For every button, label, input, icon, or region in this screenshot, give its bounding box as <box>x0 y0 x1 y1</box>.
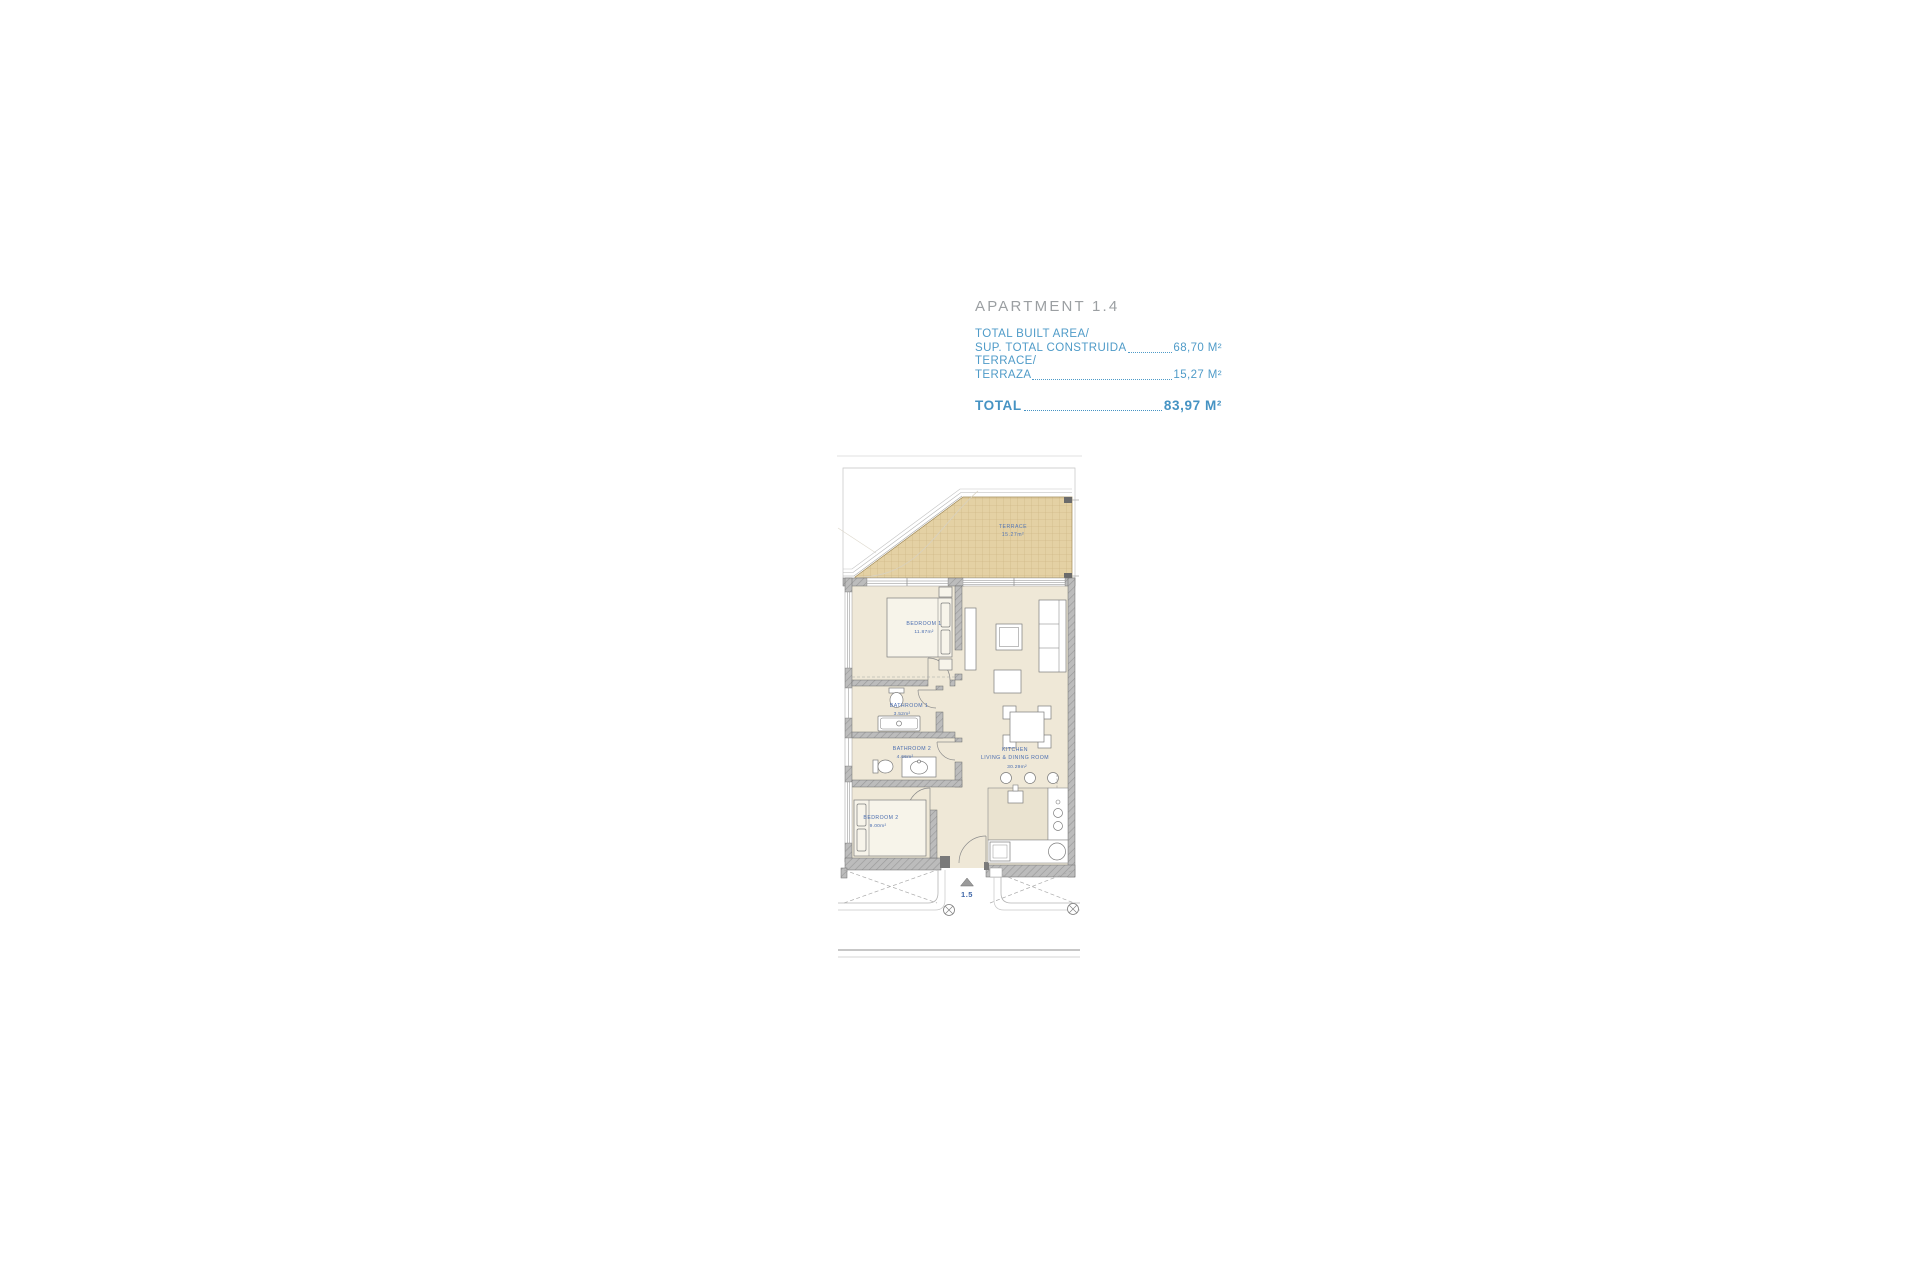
bathroom1-label: BATHROOM 1 <box>890 703 928 709</box>
built-area-value: 68,70 M² <box>1173 342 1222 356</box>
counter <box>1048 788 1068 840</box>
coffee-table-icon <box>994 670 1021 693</box>
living-dining-label: LIVING & DINING ROOM <box>981 755 1049 761</box>
bathroom2-area: 4.66m² <box>897 754 914 760</box>
armchair-cushion <box>1000 628 1019 647</box>
bedroom1-label: BEDROOM 1 <box>906 621 941 627</box>
area-summary: APARTMENT 1.4 TOTAL BUILT AREA/ SUP. TOT… <box>975 298 1225 413</box>
total-label: TOTAL <box>975 399 1022 413</box>
floor-plan: TERRACE 15.27m² <box>836 450 1084 970</box>
stool-icon <box>1001 773 1012 784</box>
nightstand-icon <box>939 587 952 597</box>
total-row: TOTAL 83,97 M² <box>975 399 1222 413</box>
dot-leader <box>1128 352 1173 353</box>
bedroom2-label: BEDROOM 2 <box>863 815 898 821</box>
entrance-marker: 1.5 <box>961 878 974 899</box>
kitchen-sink-icon <box>1008 791 1023 803</box>
entrance-post <box>940 856 950 868</box>
built-area-row: SUP. TOTAL CONSTRUIDA 68,70 M² <box>975 342 1222 356</box>
dot-leader <box>1024 410 1162 411</box>
terrace-label: TERRACE <box>999 524 1027 530</box>
bathroom2-label: BATHROOM 2 <box>893 746 931 752</box>
column-marker <box>1064 497 1072 503</box>
sideboard-icon <box>965 608 976 670</box>
bedroom1-area: 11.87m² <box>914 629 933 635</box>
terrace-label-en: TERRACE/ <box>975 355 1225 369</box>
terrace-row: TERRAZA 15,27 M² <box>975 369 1222 383</box>
washer-icon <box>1049 843 1066 860</box>
toilet-icon <box>878 760 893 773</box>
kitchen-label: KITCHEN <box>1002 747 1028 753</box>
stool-icon <box>1048 773 1059 784</box>
terrace-value: 15,27 M² <box>1173 369 1222 383</box>
dot-leader <box>1032 379 1172 380</box>
dining-table-icon <box>1010 712 1044 742</box>
pillow-icon <box>941 630 950 654</box>
terrace: TERRACE 15.27m² <box>843 489 1079 579</box>
pillow-icon <box>857 829 866 851</box>
bedroom2-furniture <box>854 800 926 856</box>
stool-icon <box>1025 773 1036 784</box>
site-work <box>838 868 1080 957</box>
drain-icon <box>897 721 902 726</box>
pillow-icon <box>941 603 950 627</box>
apartment-title: APARTMENT 1.4 <box>975 298 1225 315</box>
tap-icon <box>918 760 921 763</box>
toilet-tank-icon <box>873 760 878 773</box>
entrance-arrow-icon <box>961 878 974 886</box>
total-value: 83,97 M² <box>1164 399 1222 413</box>
area-lines: TOTAL BUILT AREA/ SUP. TOTAL CONSTRUIDA … <box>975 328 1225 413</box>
sofa-icon <box>1039 600 1066 672</box>
bathroom1-area: 3.52m² <box>894 711 911 717</box>
terrace-label-es: TERRAZA <box>975 369 1031 383</box>
nightstand-icon <box>939 659 952 670</box>
page: APARTMENT 1.4 TOTAL BUILT AREA/ SUP. TOT… <box>0 0 1920 1280</box>
built-area-label-en: TOTAL BUILT AREA/ <box>975 328 1225 342</box>
bedroom2-area: 9.00m² <box>870 823 887 829</box>
terrace-area: 15.27m² <box>1002 532 1025 538</box>
built-area-label-es: SUP. TOTAL CONSTRUIDA <box>975 342 1127 356</box>
entrance-level: 1.5 <box>961 890 973 899</box>
kitchen-area: 30.29m² <box>1007 764 1027 770</box>
tap-icon <box>1013 785 1018 791</box>
